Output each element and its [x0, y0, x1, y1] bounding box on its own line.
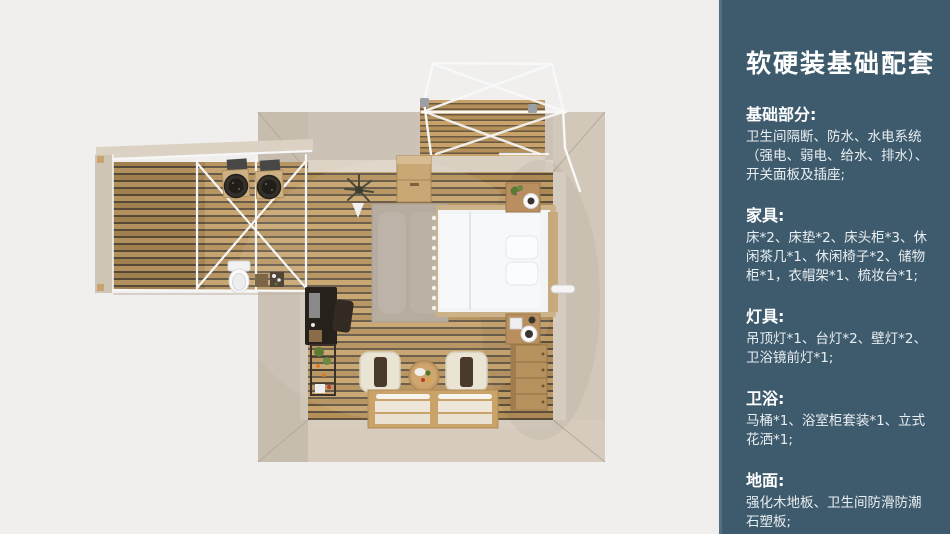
spec-panel: 软硬装基础配套 基础部分: 卫生间隔断、防水、水电系统 （强电、弱电、给水、排水… [719, 0, 950, 534]
section-body: 床*2、床垫*2、床头柜*3、休 闲茶几*1、休闲椅子*2、储物 柜*1，衣帽架… [746, 229, 936, 286]
slide: 软硬装基础配套 基础部分: 卫生间隔断、防水、水电系统 （强电、弱电、给水、排水… [0, 0, 950, 534]
toilet [228, 261, 250, 293]
coffee-table [409, 361, 439, 391]
armchair-left [360, 352, 400, 392]
frame-bracket [420, 98, 429, 107]
section-heading: 家具: [746, 205, 936, 227]
section-body: 吊顶灯*1、台灯*2、壁灯*2、 卫浴镜前灯*1; [746, 330, 936, 368]
pillow [506, 262, 538, 285]
bolster-pillow [376, 394, 430, 399]
section-lighting: 灯具: 吊顶灯*1、台灯*2、壁灯*2、 卫浴镜前灯*1; [746, 306, 936, 368]
headboard [548, 212, 558, 312]
panel-title: 软硬装基础配套 [746, 44, 936, 80]
nightstand-bottom [506, 314, 540, 344]
section-furniture: 家具: 床*2、床垫*2、床头柜*3、休 闲茶几*1、休闲椅子*2、储物 柜*1… [746, 205, 936, 286]
section-heading: 地面: [746, 470, 936, 492]
pillow [506, 236, 538, 259]
annex-left-wall [95, 155, 113, 293]
section-basics: 基础部分: 卫生间隔断、防水、水电系统 （强电、弱电、给水、排水）、 开关面板及… [746, 104, 936, 185]
frame-bracket [528, 104, 537, 113]
bolster-pillow [438, 394, 492, 399]
section-body: 卫生间隔断、防水、水电系统 （强电、弱电、给水、排水）、 开关面板及插座; [746, 128, 936, 185]
section-bathroom: 卫浴: 马桶*1、浴室柜套装*1、立式 花洒*1; [746, 388, 936, 450]
section-heading: 基础部分: [746, 104, 936, 126]
wall-lamp [551, 285, 575, 293]
section-flooring: 地面: 强化木地板、卫生间防滑防潮 石塑板; [746, 470, 936, 532]
armchair-right [446, 352, 487, 392]
dresser [511, 345, 547, 410]
double-bed [432, 205, 558, 317]
section-heading: 卫浴: [746, 388, 936, 410]
floorplan-render [0, 0, 719, 534]
storage-cabinet-top [397, 156, 431, 202]
section-heading: 灯具: [746, 306, 936, 328]
section-body: 马桶*1、浴室柜套装*1、立式 花洒*1; [746, 412, 936, 450]
tatami-platform-bed [368, 390, 498, 428]
section-body: 强化木地板、卫生间防滑防潮 石塑板; [746, 494, 936, 532]
nightstand-top [506, 183, 540, 212]
